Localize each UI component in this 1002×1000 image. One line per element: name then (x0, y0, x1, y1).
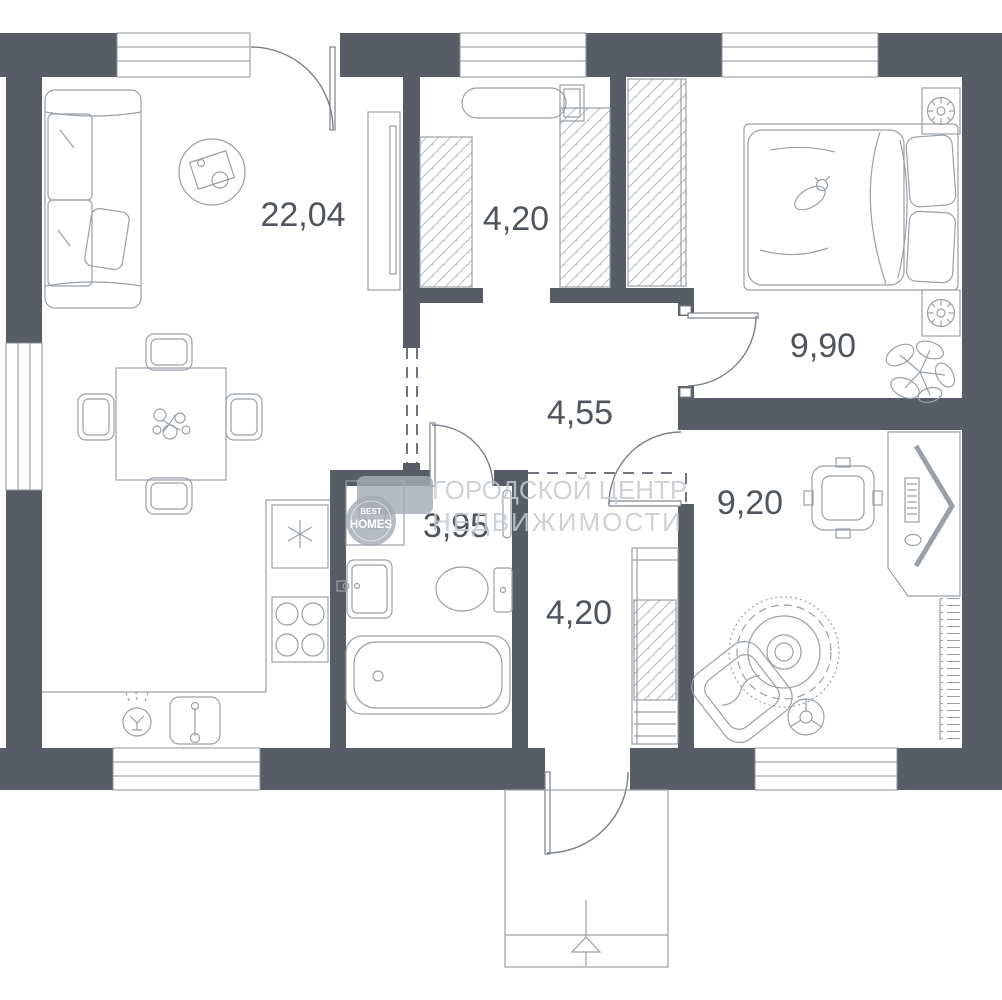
watermark-line-1: ГОРОДСКОЙ ЦЕНТР (432, 475, 687, 505)
dining-chair (146, 478, 192, 514)
bedroom-door (688, 313, 758, 386)
flower-decor (153, 409, 190, 439)
dog (791, 176, 830, 215)
bed (744, 124, 958, 290)
logo-text-top: BEST (360, 507, 381, 516)
dishwasher-icon (123, 692, 151, 736)
floor-plan-svg: 22,04 4,20 9,90 4,55 3,95 4,20 9,20 BEST… (0, 0, 1002, 1000)
terrace-door (251, 47, 335, 130)
coffee-table (179, 139, 245, 205)
kitchen-counter (42, 500, 330, 744)
window-living-left (6, 343, 42, 490)
area-label-bedroom: 9,90 (790, 327, 856, 365)
watermark-line-2: НЕДВИЖИМОСТИ (432, 507, 683, 537)
entrance-porch (505, 790, 668, 967)
kitchen-sink (170, 697, 220, 744)
window-kids-bottom (755, 748, 897, 790)
toilet (436, 567, 512, 612)
logo-text-bottom: HOMES (350, 519, 393, 531)
dressing-room-furniture (420, 85, 610, 287)
window-living-top (117, 33, 250, 77)
mouse (905, 535, 921, 546)
window-kitchen-bottom (113, 748, 260, 790)
entry-hall-furniture (632, 548, 678, 744)
agency-logo: BEST HOMES (346, 476, 433, 546)
armchair (685, 634, 800, 749)
desk-chair (804, 458, 882, 538)
area-label-hallway: 4,55 (547, 394, 613, 432)
nightstand (922, 290, 960, 336)
area-label-dressing-room: 4,20 (483, 200, 549, 238)
tv-unit (368, 112, 400, 290)
fridge (272, 505, 328, 568)
dining-chair (226, 394, 262, 440)
area-label-kids-room: 9,20 (717, 484, 783, 522)
kids-room-furniture (685, 432, 960, 750)
corner-desk (888, 432, 960, 596)
wardrobe (632, 548, 678, 744)
window-dressing-top (460, 33, 586, 77)
radiator-shelf (940, 598, 960, 740)
floor-plan: 22,04 4,20 9,90 4,55 3,95 4,20 9,20 BEST… (0, 0, 1002, 1000)
entrance-door (545, 772, 628, 854)
area-label-entry-hall: 4,20 (546, 594, 612, 632)
dining-chair (78, 394, 114, 440)
toy-steering-wheel (788, 699, 824, 735)
window-bedroom-top (722, 33, 878, 77)
plant (883, 338, 959, 405)
wardrobe (628, 79, 686, 286)
nightstand (922, 88, 960, 134)
cooktop (272, 597, 328, 662)
keyboard (905, 478, 919, 522)
dining-chair (146, 334, 192, 370)
wardrobe (420, 137, 472, 287)
dining-table (78, 334, 262, 514)
rug (729, 597, 839, 707)
sofa (45, 90, 141, 308)
area-label-living-kitchen: 22,04 (260, 196, 345, 234)
wardrobe (560, 108, 610, 287)
bathtub (346, 636, 510, 714)
